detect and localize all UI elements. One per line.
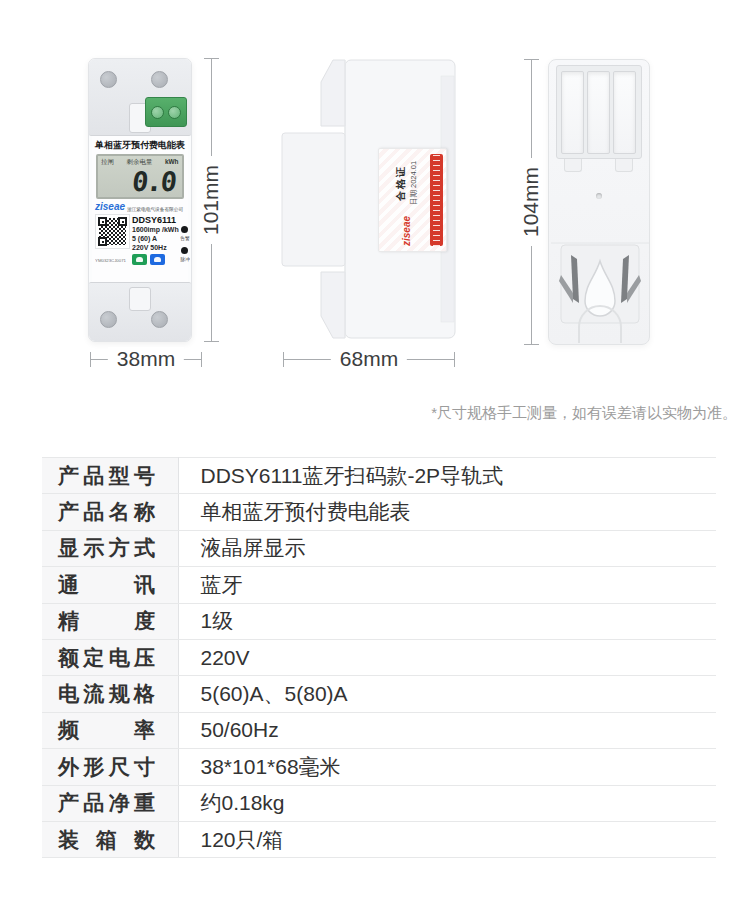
spec-label-text: 额定电压: [58, 644, 155, 672]
spec-label-cell: 产品净重: [42, 785, 178, 821]
terminal-screw-icon: [100, 71, 117, 88]
spec-label-text: 精 度: [58, 607, 155, 635]
spec-value-text: 5(60)A、5(80)A: [178, 676, 716, 712]
spec-label-text: 频 率: [58, 716, 155, 744]
aux-terminal-block: [145, 97, 187, 127]
spec-label-text: 显示方式: [58, 534, 155, 562]
spec-value-text: 单相蓝牙预付费电能表: [178, 494, 716, 530]
pulse-led-icon: [181, 247, 188, 254]
table-row: 产品净重 约0.18kg: [42, 785, 716, 821]
spec-value-text: 38*101*68毫米: [178, 749, 716, 785]
vent-slot: [561, 71, 584, 154]
spec-table: 产品型号 DDSY6111蓝牙扫码款-2P导轨式 产品名称 单相蓝牙预付费电能表…: [42, 457, 716, 858]
cloud-icon: [132, 254, 147, 265]
meter-front-view: 单相蓝牙预付费电能表 拉闸 剩余电量 kWh 0.0 ziseae 浙江紫电电气…: [88, 58, 192, 342]
back-tab: [615, 159, 633, 172]
lcd-reading: 0.0: [100, 168, 181, 195]
spec-label-cell: 外形尺寸: [42, 749, 178, 785]
spec-value-text: 50/60Hz: [178, 712, 716, 748]
table-row: 电流规格 5(60)A、5(80)A: [42, 676, 716, 712]
spec-value-text: 120只/箱: [178, 821, 716, 857]
dimension-front-width: 38mm: [90, 346, 202, 372]
meter-title: 单相蓝牙预付费电能表: [95, 139, 185, 152]
pulse-label: 脉冲: [180, 256, 190, 263]
lcd-display: 拉闸 剩余电量 kWh 0.0: [96, 154, 184, 199]
spec-label-text: 外形尺寸: [58, 753, 155, 781]
terminal-screw-icon: [151, 71, 168, 88]
dimension-value: 101mm: [199, 156, 223, 244]
dimension-value: 68mm: [331, 347, 407, 371]
alarm-label: 告警: [180, 235, 190, 242]
table-row: 显示方式 液晶屏显示: [42, 530, 716, 566]
din-rail-clip: [549, 239, 651, 344]
dimension-side-depth: 68mm: [283, 346, 455, 372]
table-row: 额定电压 220V: [42, 639, 716, 675]
cert-text: 合格证 日期 2024.01: [394, 154, 419, 212]
vent-slot: [587, 71, 610, 154]
serial-number: YM0323CJ0071: [95, 258, 126, 262]
dimension-value: 104mm: [519, 158, 543, 246]
product-detail-page: 单相蓝牙预付费电能表 拉闸 剩余电量 kWh 0.0 ziseae 浙江紫电电气…: [0, 0, 750, 922]
spec-label-cell: 显示方式: [42, 530, 178, 566]
company-name: 浙江紫电电气设备有限公司: [127, 206, 183, 213]
spec-label-cell: 电流规格: [42, 676, 178, 712]
spec-value-text: 液晶屏显示: [178, 530, 716, 566]
cert-title: 合格证: [394, 154, 408, 212]
brand-row: ziseae 浙江紫电电气设备有限公司: [95, 201, 185, 213]
mount-hole: [596, 193, 602, 199]
cert-brand-logo: ziseae: [401, 216, 412, 246]
table-row: 通 讯 蓝牙: [42, 567, 716, 603]
spec-value-text: 1级: [178, 603, 716, 639]
spec-label-cell: 通 讯: [42, 567, 178, 603]
alarm-led-icon: [181, 226, 188, 233]
dimension-value: 38mm: [108, 347, 184, 371]
vent-slot: [613, 71, 636, 154]
terminal-cover-bottom: [89, 282, 191, 341]
spec-label-cell: 产品名称: [42, 494, 178, 530]
table-row: 产品名称 单相蓝牙预付费电能表: [42, 494, 716, 530]
current-spec: 5 (60) A: [132, 234, 179, 243]
spec-label-text: 产品名称: [58, 498, 155, 526]
measurement-disclaimer: *尺寸规格手工测量，如有误差请以实物为准。: [431, 404, 737, 423]
spec-label-text: 产品净重: [58, 789, 155, 817]
voltage-spec: 220V 50Hz: [132, 243, 179, 252]
table-row: 精 度 1级: [42, 603, 716, 639]
indicator-column: 告警 脉冲: [179, 214, 191, 268]
back-vent-recess: [556, 65, 642, 159]
dimension-front-height: 101mm: [198, 58, 224, 342]
cert-label: ziseae 合格证 日期 2024.01: [378, 148, 447, 252]
table-row: 频 率 50/60Hz: [42, 712, 716, 748]
spec-label-cell: 产品型号: [42, 458, 178, 494]
spec-label-cell: 精 度: [42, 603, 178, 639]
impulse-rate: 1600imp /kWh: [132, 225, 179, 234]
qr-column: YM0323CJ0071: [95, 214, 132, 268]
terminal-cover-top: [89, 59, 191, 136]
spec-label-text: 产品型号: [58, 462, 155, 490]
cover-clip: [129, 287, 151, 311]
brand-logo: ziseae: [95, 201, 125, 212]
meter-side-view: ziseae 合格证 日期 2024.01: [281, 58, 457, 340]
company-banner: [430, 154, 443, 246]
faceplate-specs: DDSY6111 1600imp /kWh 5 (60) A 220V 50Hz: [132, 214, 179, 268]
spec-value-text: 蓝牙: [178, 567, 716, 603]
spec-label-text: 电流规格: [58, 680, 155, 708]
meter-back-view: [548, 59, 650, 345]
spec-label-text: 通 讯: [58, 571, 155, 599]
model-number: DDSY6111: [132, 215, 179, 225]
spec-value-text: 约0.18kg: [178, 785, 716, 821]
spec-label-text: 装 箱 数: [58, 826, 155, 854]
bluetooth-icon: [150, 254, 165, 265]
back-tab: [564, 159, 582, 172]
spec-value-text: 220V: [178, 639, 716, 675]
spec-table-body: 产品型号 DDSY6111蓝牙扫码款-2P导轨式 产品名称 单相蓝牙预付费电能表…: [42, 458, 716, 858]
terminal-screw-icon: [151, 311, 168, 328]
faceplate-info: YM0323CJ0071 DDSY6111 1600imp /kWh 5 (60…: [95, 214, 185, 268]
qr-code-icon: [95, 214, 130, 249]
lcd-status-left: 拉闸: [101, 158, 114, 167]
spec-label-cell: 额定电压: [42, 639, 178, 675]
spec-value-text: DDSY6111蓝牙扫码款-2P导轨式: [178, 458, 716, 494]
table-row: 产品型号 DDSY6111蓝牙扫码款-2P导轨式: [42, 458, 716, 494]
terminal-screw-icon: [100, 311, 117, 328]
dimension-back-height: 104mm: [518, 59, 544, 345]
table-row: 外形尺寸 38*101*68毫米: [42, 749, 716, 785]
cert-date: 日期 2024.01: [409, 154, 419, 212]
meter-faceplate: 单相蓝牙预付费电能表 拉闸 剩余电量 kWh 0.0 ziseae 浙江紫电电气…: [92, 136, 188, 283]
button-row: [132, 254, 179, 265]
spec-label-cell: 频 率: [42, 712, 178, 748]
table-row: 装 箱 数 120只/箱: [42, 821, 716, 857]
spec-label-cell: 装 箱 数: [42, 821, 178, 857]
